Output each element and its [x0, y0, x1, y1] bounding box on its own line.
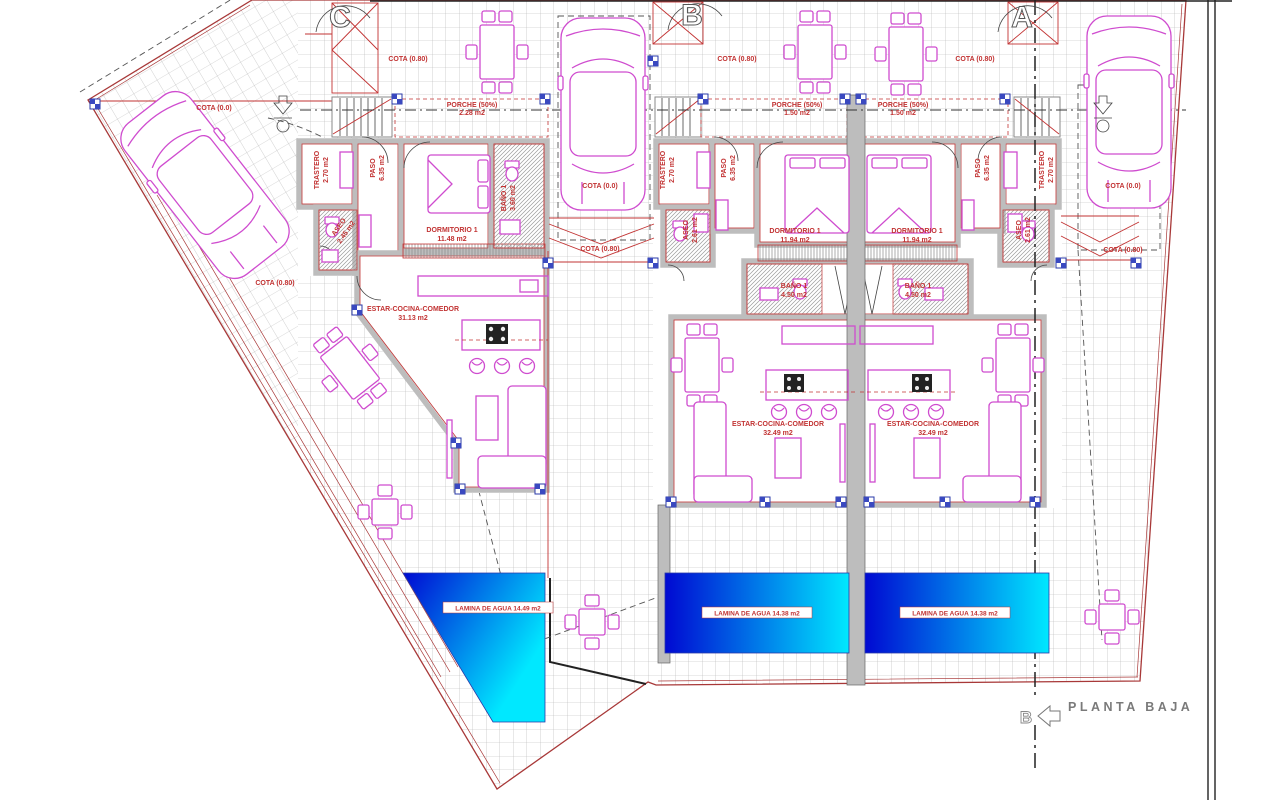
- a-estar-name: ESTAR-COCINA-COMEDOR: [887, 421, 979, 428]
- b-bano-name: BAÑO 1: [781, 281, 808, 290]
- b-estar-area: 32.49 m2: [763, 430, 793, 437]
- b-trastero-name: TRASTERO: [660, 150, 667, 189]
- floor-plan-drawing: LAMINA DE AGUA 14.49 m2 LAMINA DE AGUA 1…: [0, 0, 1280, 800]
- cota-left-zero: COTA (0.0): [196, 105, 231, 112]
- car-right: [1084, 16, 1174, 208]
- b-porche-name: PORCHE (50%): [772, 102, 823, 109]
- c-porche-area: 2.28 m2: [459, 110, 485, 117]
- a-aseo-area: 2.61 m2: [1025, 217, 1032, 243]
- toilet-c-bano: [505, 161, 519, 181]
- c-trastero-name: TRASTERO: [314, 150, 321, 189]
- a-trastero-name: TRASTERO: [1039, 150, 1046, 189]
- pool-a-label: LAMINA DE AGUA 14.38 m2: [912, 611, 998, 618]
- bed-c: [428, 155, 490, 213]
- a-trastero-area: 2.70 m2: [1048, 157, 1055, 183]
- a-dormitorio-name: DORMITORIO 1: [891, 228, 942, 235]
- b-aseo-name: ASEO: [683, 220, 690, 240]
- bed-a: [867, 155, 931, 233]
- a-dormitorio-area: 11.94 m2: [902, 237, 931, 244]
- cota-mid-zero: COTA (0.0): [582, 183, 617, 190]
- marker-a: A: [1011, 1, 1033, 34]
- c-estar-name: ESTAR-COCINA-COMEDOR: [367, 306, 459, 313]
- sink-c-bano: [500, 220, 520, 234]
- pools: LAMINA DE AGUA 14.49 m2 LAMINA DE AGUA 1…: [403, 573, 1049, 722]
- b-aseo-area: 2.61 m2: [692, 217, 699, 243]
- c-paso-name: PASO: [370, 158, 377, 178]
- c-paso-area: 6.35 m2: [379, 155, 386, 181]
- shelf-c: [340, 152, 353, 188]
- a-porche-name: PORCHE (50%): [878, 102, 929, 109]
- b-paso-area: 6.35 m2: [730, 155, 737, 181]
- a-paso-area: 6.35 m2: [984, 155, 991, 181]
- pool-b-label: LAMINA DE AGUA 14.38 m2: [714, 611, 800, 618]
- c-dormitorio-area: 11.48 m2: [437, 236, 466, 243]
- b-paso-name: PASO: [721, 158, 728, 178]
- section-arrow-icon: [1038, 706, 1060, 726]
- party-wall-b-a: [847, 95, 865, 685]
- cabinet-paso-a: [962, 200, 974, 230]
- a-estar-area: 32.49 m2: [918, 430, 948, 437]
- c-trastero-area: 2.70 m2: [323, 157, 330, 183]
- b-porche-area: 1.50 m2: [784, 110, 810, 117]
- c-estar-area: 31.13 m2: [398, 315, 428, 322]
- marker-c: C: [329, 1, 351, 34]
- floor-plan-canvas: LAMINA DE AGUA 14.49 m2 LAMINA DE AGUA 1…: [0, 0, 1280, 800]
- b-trastero-area: 2.70 m2: [669, 157, 676, 183]
- car-middle: [558, 18, 648, 210]
- b-estar-name: ESTAR-COCINA-COMEDOR: [732, 421, 824, 428]
- marker-b: B: [681, 0, 703, 32]
- a-aseo-name: ASEO: [1016, 220, 1023, 240]
- a-porche-area: 1.50 m2: [890, 110, 916, 117]
- unit-a-closet: [859, 245, 957, 261]
- shelf-a: [1004, 152, 1017, 188]
- bed-b: [785, 155, 849, 233]
- cabinet-paso-b: [716, 200, 728, 230]
- sink-c-aseo: [322, 250, 338, 262]
- pool-c-label: LAMINA DE AGUA 14.49 m2: [455, 606, 541, 613]
- c-porche-name: PORCHE (50%): [447, 102, 498, 109]
- b-bano-area: 4.50 m2: [781, 292, 807, 299]
- shelf-b: [697, 152, 710, 188]
- cota-right-eighty: COTA (0.80): [1103, 247, 1142, 254]
- plan-title: PLANTA BAJA: [1068, 700, 1193, 714]
- right-border-lines: [1208, 0, 1215, 800]
- cota-top-b: COTA (0.80): [717, 56, 756, 63]
- cota-mid-eighty: COTA (0.80): [580, 246, 619, 253]
- cabinet-paso-c: [359, 215, 371, 247]
- c-bano-name: BAÑO 1: [499, 185, 508, 212]
- cota-top-c: COTA (0.80): [388, 56, 427, 63]
- cota-right-zero: COTA (0.0): [1105, 183, 1140, 190]
- cota-top-a: COTA (0.80): [955, 56, 994, 63]
- c-bano-area: 3.60 m2: [510, 185, 517, 211]
- b-dormitorio-name: DORMITORIO 1: [769, 228, 820, 235]
- a-paso-name: PASO: [975, 158, 982, 178]
- c-dormitorio-name: DORMITORIO 1: [426, 227, 477, 234]
- b-dormitorio-area: 11.94 m2: [780, 237, 809, 244]
- sink-b-bano: [760, 288, 778, 300]
- cota-left-eighty: COTA (0.80): [255, 280, 294, 287]
- a-bano-area: 4.50 m2: [905, 292, 931, 299]
- unit-b-closet: [758, 245, 856, 261]
- a-bano-name: BAÑO 1: [905, 281, 932, 290]
- bottom-marker-letter: B: [1020, 708, 1032, 727]
